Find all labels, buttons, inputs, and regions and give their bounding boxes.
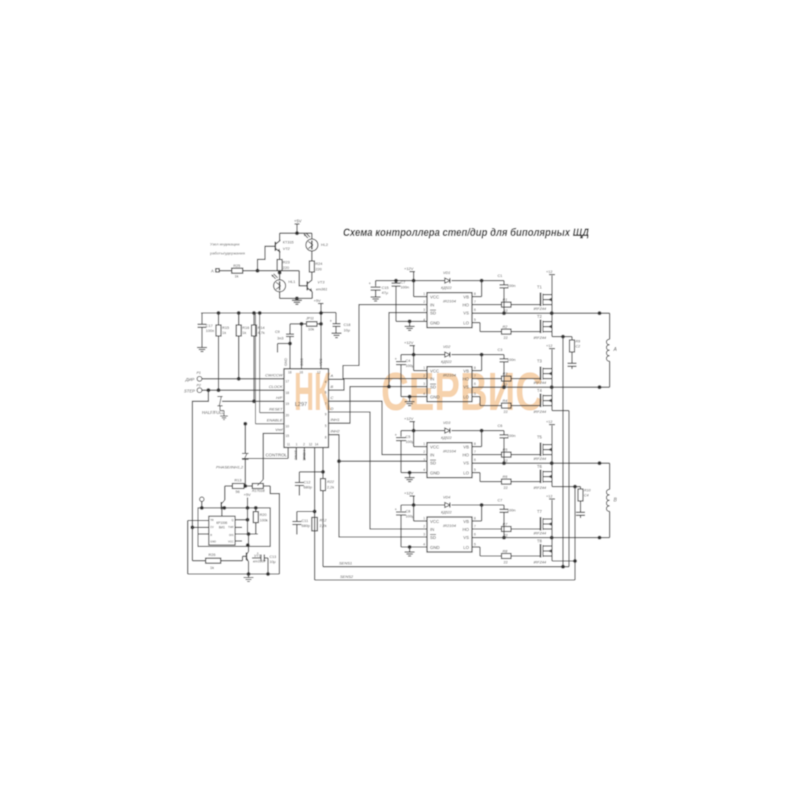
svg-text:22: 22 [504,336,508,340]
svg-text:SENS2: SENS2 [340,574,354,579]
svg-text:C1: C1 [498,274,503,278]
svg-text:C8: C8 [406,510,411,514]
svg-text:22: 22 [504,534,508,538]
svg-text:7: 7 [474,374,476,378]
svg-text:7: 7 [325,402,327,406]
svg-text:R12: R12 [320,519,328,523]
svg-text:GND: GND [430,395,440,400]
svg-text:4,7k: 4,7k [258,331,265,335]
svg-text:LO: LO [463,471,469,476]
svg-text:IRFZ44: IRFZ44 [534,381,547,385]
svg-text:10μ: 10μ [344,329,350,333]
svg-text:12: 12 [317,371,321,375]
svg-text:1k: 1k [210,566,214,570]
svg-text:C: C [331,395,334,400]
svg-text:1k: 1k [222,331,226,335]
svg-text:L297: L297 [295,402,307,408]
svg-text:3: 3 [423,308,425,312]
svg-text:R24: R24 [315,262,322,266]
svg-text:100μ: 100μ [406,514,415,518]
svg-text:2: 2 [423,450,425,454]
svg-text:1: 1 [423,442,425,446]
svg-text:IRFZ44: IRFZ44 [534,410,547,414]
svg-text:C6: C6 [498,424,503,428]
svg-text:1: 1 [296,443,298,447]
svg-text:R: R [210,533,212,537]
svg-text:3n3: 3n3 [277,337,283,341]
svg-text:100k: 100k [260,518,268,522]
svg-text:CV: CV [210,525,214,529]
svg-text:C17: C17 [206,324,213,328]
svg-text:IRFZ44: IRFZ44 [534,532,547,536]
svg-text:SD: SD [430,311,436,316]
svg-text:22: 22 [504,309,508,313]
svg-text:22: 22 [504,486,508,490]
svg-text:HOME: HOME [302,450,306,461]
svg-text:IR2104: IR2104 [443,373,457,378]
svg-text:680p: 680p [304,486,312,490]
svg-text:R14: R14 [258,326,265,330]
svg-text:3: 3 [423,533,425,537]
svg-text:4: 4 [423,468,425,472]
svg-text:2: 2 [423,374,425,378]
svg-text:IRFZ44: IRFZ44 [534,486,547,490]
svg-text:VD1: VD1 [443,271,450,275]
svg-text:IRFZ44: IRFZ44 [534,457,547,461]
svg-text:ДИР: ДИР [185,377,195,382]
svg-text:VCC: VCC [430,369,439,374]
svg-text:Q: Q [231,518,233,522]
svg-text:11: 11 [287,443,291,447]
svg-text:3: 3 [423,382,425,386]
svg-text:680p: 680p [302,524,310,528]
svg-text:100n: 100n [507,284,515,288]
svg-text:100μ: 100μ [406,364,415,368]
svg-text:5: 5 [474,468,476,472]
svg-text:56: 56 [236,490,240,494]
svg-text:1k: 1k [235,275,239,279]
svg-text:R25: R25 [233,264,240,268]
svg-text:C18: C18 [344,323,351,327]
svg-text:INH2: INH2 [331,429,341,434]
svg-text:OSC: OSC [300,358,304,366]
svg-text:LO: LO [463,321,469,326]
svg-text:5: 5 [474,318,476,322]
svg-text:VS: VS [463,385,469,390]
svg-text:2,2k: 2,2k [327,485,334,489]
svg-text:R4: R4 [503,399,508,403]
svg-text:100n: 100n [507,434,515,438]
svg-text:VS: VS [463,311,469,316]
svg-text:220: 220 [315,267,321,271]
svg-text:6: 6 [474,533,476,537]
svg-text:КД522: КД522 [441,436,452,440]
svg-text:VB: VB [463,445,469,450]
svg-text:2: 2 [423,525,425,529]
svg-text:IRFZ44: IRFZ44 [534,336,547,340]
svg-text:SYNC: SYNC [294,450,298,460]
svg-text:R1701B: R1701B [252,489,265,493]
svg-text:A: A [613,347,618,353]
svg-text:GND: GND [430,321,440,326]
svg-text:GND: GND [210,540,216,544]
svg-text:T1: T1 [537,285,543,290]
svg-text:IR2104: IR2104 [443,449,457,454]
svg-text:R1: R1 [503,298,508,302]
svg-text:GND: GND [430,545,440,550]
svg-text:HL2: HL2 [321,243,328,247]
svg-text:VCC: VCC [319,358,323,366]
svg-text:VCC: VCC [430,445,439,450]
svg-text:PHASE/INH1,2: PHASE/INH1,2 [216,465,244,470]
svg-text:R20: R20 [260,513,267,517]
svg-text:2,2k: 2,2k [320,524,327,528]
svg-text:R13: R13 [235,479,242,483]
svg-text:20: 20 [286,413,290,417]
svg-text:8: 8 [325,435,327,439]
svg-text:100n: 100n [507,358,515,362]
svg-text:R15: R15 [222,326,229,330]
svg-text:22: 22 [504,561,508,565]
svg-text:SD: SD [430,461,436,466]
svg-text:IRFZ44: IRFZ44 [534,307,547,311]
svg-text:C7: C7 [498,499,503,503]
svg-text:A: A [330,373,334,378]
svg-text:+12V: +12V [404,491,414,496]
svg-text:IRFZ44: IRFZ44 [534,561,547,565]
svg-text:10μ: 10μ [270,560,276,564]
svg-text:GND: GND [284,358,288,366]
svg-text:C9: C9 [275,330,280,334]
svg-text:SD: SD [430,535,436,540]
svg-text:SD: SD [430,385,436,390]
svg-text:6: 6 [474,308,476,312]
svg-text:DIS: DIS [229,533,234,537]
svg-text:7: 7 [474,300,476,304]
svg-text:1: 1 [423,517,425,521]
svg-text:+12: +12 [546,344,552,348]
svg-text:CLOCK: CLOCK [269,384,283,389]
svg-text:18: 18 [288,371,292,375]
svg-text:C13: C13 [270,555,277,559]
svg-text:VD3: VD3 [443,421,451,425]
svg-text:IN: IN [430,303,434,308]
svg-text:16: 16 [300,371,304,375]
svg-text:8: 8 [474,442,476,446]
svg-text:VS: VS [463,535,469,540]
svg-text:КД522: КД522 [441,360,452,364]
svg-text:4: 4 [325,380,327,384]
svg-text:INH1: INH1 [331,417,340,422]
svg-text:22: 22 [504,459,508,463]
svg-text:IR2104: IR2104 [443,299,457,304]
svg-text:2: 2 [423,300,425,304]
svg-text:14: 14 [315,443,319,447]
svg-text:STEP: STEP [184,389,195,394]
svg-text:+12V: +12V [404,416,414,421]
svg-text:15: 15 [286,434,290,438]
svg-text:R9: R9 [576,340,581,344]
svg-text:LO: LO [463,545,469,550]
svg-text:5: 5 [325,424,327,428]
svg-text:VS: VS [463,461,469,466]
svg-text:+12: +12 [546,495,552,499]
svg-text:10k: 10k [308,328,314,332]
svg-text:7: 7 [474,525,476,529]
svg-text:4: 4 [423,543,425,547]
svg-text:4: 4 [423,318,425,322]
svg-text:HO: HO [463,303,470,308]
svg-text:3: 3 [423,458,425,462]
svg-text:VT3: VT3 [318,281,326,285]
svg-text:100n: 100n [507,509,515,513]
svg-text:VB: VB [463,369,469,374]
svg-text:R26: R26 [209,553,216,557]
svg-text:47μ: 47μ [382,291,388,295]
svg-text:C12: C12 [304,480,311,484]
svg-text:R10: R10 [584,489,591,493]
svg-text:9: 9 [325,413,327,417]
svg-text:LO: LO [463,395,469,400]
svg-text:IN: IN [430,453,434,458]
svg-text:T7: T7 [537,509,543,514]
svg-text:7: 7 [474,450,476,454]
svg-text:2: 2 [303,443,305,447]
svg-text:VD4: VD4 [443,496,450,500]
svg-text:TR: TR [210,518,214,522]
svg-text:КД522: КД522 [441,286,452,290]
svg-text:CONTROL: CONTROL [266,453,288,458]
svg-text:Vref: Vref [275,427,283,432]
svg-text:VD2: VD2 [443,345,451,349]
svg-text:5: 5 [474,392,476,396]
svg-text:B: B [331,384,334,389]
svg-text:HL1: HL1 [288,280,295,284]
svg-text:IR2104: IR2104 [443,523,457,528]
svg-text:THR: THR [228,525,233,529]
svg-text:+5V: +5V [314,298,322,303]
svg-text:C3: C3 [498,348,503,352]
svg-text:1k: 1k [242,331,246,335]
svg-text:6: 6 [474,458,476,462]
svg-text:T6: T6 [537,464,543,469]
svg-text:1: 1 [423,292,425,296]
svg-text:+5V: +5V [294,219,302,224]
svg-text:100n: 100n [401,285,409,289]
svg-text:+12: +12 [546,420,552,424]
svg-text:8: 8 [474,292,476,296]
svg-text:VCC: VCC [430,295,439,300]
svg-text:IN: IN [430,377,434,382]
svg-text:КД522: КД522 [441,511,452,515]
svg-text:HO: HO [463,453,470,458]
svg-text:100n: 100n [206,329,214,333]
svg-text:8: 8 [474,517,476,521]
svg-text:C7: C7 [401,281,406,285]
svg-text:10: 10 [286,424,290,428]
svg-text:P1: P1 [197,371,201,375]
svg-text:VCC: VCC [430,519,439,524]
svg-text:HALF/FULL: HALF/FULL [202,410,225,415]
svg-text:T4: T4 [537,388,543,393]
svg-text:работы/удержания: работы/удержания [210,251,245,256]
svg-text:HO: HO [463,527,470,532]
svg-text:220: 220 [283,266,289,270]
svg-text:12: 12 [309,443,313,447]
svg-text:C4: C4 [584,494,589,498]
svg-text:R22: R22 [327,480,335,484]
svg-text:6: 6 [474,382,476,386]
svg-text:T8: T8 [537,539,543,544]
svg-text:VB: VB [463,519,469,524]
svg-text:IN: IN [430,527,434,532]
svg-text:6: 6 [325,391,327,395]
svg-text:КТ315: КТ315 [283,241,294,245]
svg-text:H/F: H/F [276,395,283,400]
svg-text:T5: T5 [537,435,543,440]
svg-text:Схема контроллера степ/дир для: Схема контроллера степ/дир для биполярны… [343,227,589,239]
svg-text:+12V: +12V [404,266,414,271]
svg-text:A: A [211,268,214,273]
svg-text:Узел индикации: Узел индикации [210,242,239,247]
svg-text:+5V: +5V [244,492,252,497]
svg-text:17: 17 [286,379,290,383]
svg-text:19: 19 [286,402,290,406]
svg-text:18: 18 [286,391,290,395]
svg-text:ВИ1: ВИ1 [219,526,225,530]
svg-text:C2: C2 [576,345,581,349]
svg-text:ENABLE: ENABLE [267,418,283,423]
svg-text:VB: VB [463,295,469,300]
svg-text:+12V: +12V [404,340,414,345]
svg-text:КР1006: КР1006 [216,521,227,525]
svg-text:T3: T3 [537,359,543,364]
svg-text:R16: R16 [242,326,249,330]
svg-text:HO: HO [463,377,470,382]
svg-text:8: 8 [474,366,476,370]
svg-text:CW/CCW: CW/CCW [265,373,284,378]
svg-text:4: 4 [423,392,425,396]
svg-text:R23: R23 [283,260,290,264]
svg-text:СЕРВИС: СЕРВИС [381,362,543,422]
svg-text:22: 22 [504,410,508,414]
svg-text:GND: GND [430,471,440,476]
svg-text:1: 1 [423,366,425,370]
svg-text:VT2: VT2 [283,247,291,251]
svg-text:100μ: 100μ [406,440,415,444]
svg-text:D: D [331,406,334,411]
svg-text:C11: C11 [302,519,309,523]
svg-text:C5: C5 [406,435,411,439]
svg-text:JP11: JP11 [305,316,314,320]
svg-text:SENS1: SENS1 [339,561,352,566]
svg-text:+12: +12 [546,270,552,274]
svg-text:RESET: RESET [269,407,283,412]
svg-text:VCC: VCC [228,540,234,544]
svg-text:P2: P2 [197,384,201,388]
svg-text:кт361: кт361 [316,287,327,291]
svg-text:T2: T2 [537,314,543,319]
svg-text:C4: C4 [406,359,411,363]
svg-text:22: 22 [504,383,508,387]
svg-text:5: 5 [474,543,476,547]
svg-text:C15: C15 [382,286,389,290]
